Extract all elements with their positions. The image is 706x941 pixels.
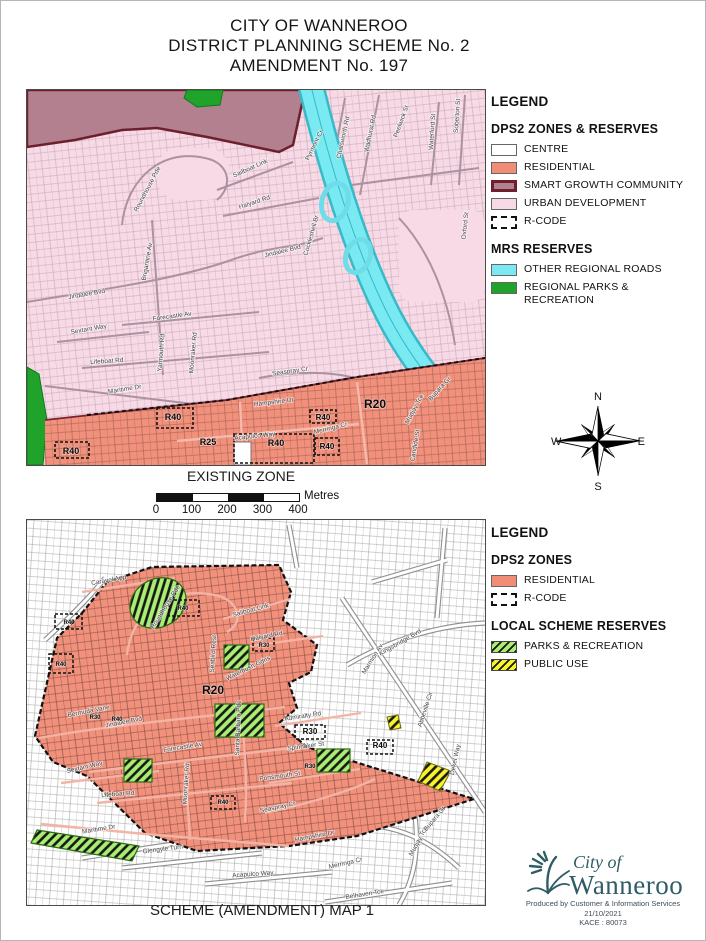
legend-item-parks-recreation: PARKS & RECREATION	[491, 640, 703, 653]
legend-item-rcode: R-CODE	[491, 592, 703, 606]
reference-text: KACE : 80073	[501, 918, 705, 927]
legend-item-rcode: R-CODE	[491, 215, 703, 229]
title-line-1: CITY OF WANNEROO	[1, 16, 637, 36]
legend-section-local-reserves: LOCAL SCHEME RESERVES	[491, 619, 703, 633]
legend-section-dps2-zones: DPS2 ZONES	[491, 553, 703, 567]
urban-development-swatch	[491, 198, 517, 210]
public-use-swatch	[491, 659, 517, 671]
compass-west-label: W	[551, 436, 562, 448]
compass-east-label: E	[638, 436, 645, 448]
centre-zone-area	[234, 442, 251, 465]
open-area	[399, 210, 485, 302]
scale-bar-segments	[156, 493, 300, 502]
residential-swatch	[491, 575, 517, 587]
scheme-amendment-map: Caravel AppRoundhouse PdeSailboat LinkHa…	[26, 519, 486, 906]
rcode-label: R20	[202, 683, 224, 697]
legend-item-residential: RESIDENTIAL	[491, 161, 703, 174]
rcode-label: R25	[200, 437, 217, 447]
existing-zone-map: Roundhouse PdeSailboat LinkHalyard RdPyr…	[26, 89, 486, 466]
rcode-label: R40	[177, 606, 189, 612]
legend-section-dps2-zones-reserves: DPS2 ZONES & RESERVES	[491, 122, 703, 136]
scale-bar: Metres 0 100 200 300 400	[149, 490, 349, 518]
existing-zone-caption: EXISTING ZONE	[131, 468, 351, 484]
legend-item-public-use: PUBLIC USE	[491, 658, 703, 671]
legend-scheme-map: LEGEND DPS2 ZONES RESIDENTIAL R-CODE LOC…	[491, 525, 703, 671]
compass-north-label: N	[594, 391, 602, 403]
legend-item-smart-growth: SMART GROWTH COMMUNITY	[491, 179, 703, 192]
rcode-label: R40	[165, 412, 182, 422]
rcode-label: R30	[258, 643, 270, 649]
rcode-label: R40	[268, 438, 285, 448]
legend-heading: LEGEND	[491, 525, 703, 540]
rcode-label: R30	[303, 727, 318, 736]
legend-existing-zone: LEGEND DPS2 ZONES & RESERVES CENTRE RESI…	[491, 94, 703, 307]
kangaroo-paw-icon	[525, 850, 571, 898]
regional-roads-swatch	[491, 264, 517, 276]
scale-tick: 0	[153, 504, 159, 516]
rcode-label: R20	[364, 397, 386, 411]
residential-swatch	[491, 162, 517, 174]
rcode-label: R40	[111, 717, 123, 723]
scale-tick: 300	[253, 504, 272, 516]
legend-item-regional-parks: REGIONAL PARKS & RECREATION	[491, 281, 703, 307]
rcode-label: R40	[316, 413, 331, 422]
rcode-label: R40	[63, 620, 75, 626]
rcode-label: R40	[55, 662, 67, 668]
scale-tick: 200	[217, 504, 236, 516]
title-line-2: DISTRICT PLANNING SCHEME No. 2	[1, 36, 637, 56]
legend-item-residential: RESIDENTIAL	[491, 574, 703, 587]
document-title: CITY OF WANNEROO DISTRICT PLANNING SCHEM…	[1, 16, 637, 76]
legend-section-mrs-reserves: MRS RESERVES	[491, 242, 703, 256]
rcode-label: R40	[63, 446, 80, 456]
title-line-3: AMENDMENT No. 197	[1, 56, 637, 76]
regional-parks-swatch	[491, 282, 517, 294]
scale-tick: 100	[182, 504, 201, 516]
smart-growth-swatch	[491, 180, 517, 192]
rcode-label: R40	[217, 800, 229, 806]
logo-wanneroo: Wanneroo	[569, 870, 683, 901]
centre-swatch	[491, 144, 517, 156]
rcode-label: R40	[373, 741, 388, 750]
rcode-label: R40	[320, 442, 335, 451]
rcode-swatch	[491, 216, 517, 229]
rcode-label: R30	[304, 764, 316, 770]
produced-by-text: Produced by Customer & Information Servi…	[501, 899, 705, 908]
legend-item-regional-roads: OTHER REGIONAL ROADS	[491, 263, 703, 276]
compass-rose: N S W E	[548, 389, 648, 493]
map-sheet-page: CITY OF WANNEROO DISTRICT PLANNING SCHEM…	[0, 0, 706, 941]
legend-item-urban-development: URBAN DEVELOPMENT	[491, 197, 703, 210]
rcode-label: R30	[89, 715, 101, 721]
compass-star	[555, 406, 640, 476]
legend-item-centre: CENTRE	[491, 143, 703, 156]
scheme-map-caption: SCHEME (AMENDMENT) MAP 1	[97, 902, 427, 919]
scale-unit-label: Metres	[304, 490, 339, 502]
scale-tick: 400	[288, 504, 307, 516]
parks-recreation-swatch	[491, 641, 517, 653]
compass-south-label: S	[594, 481, 601, 493]
rcode-swatch	[491, 593, 517, 606]
date-text: 21/10/2021	[501, 909, 705, 918]
legend-heading: LEGEND	[491, 94, 703, 109]
